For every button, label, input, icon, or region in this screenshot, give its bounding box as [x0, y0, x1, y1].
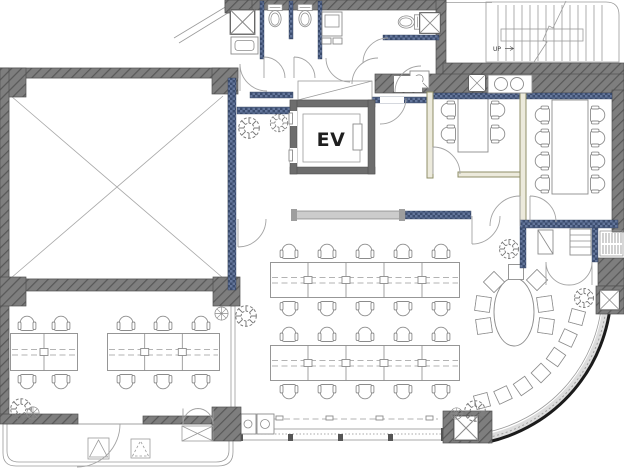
shaft-icon [600, 290, 620, 310]
void-atrium [9, 78, 228, 279]
desk-row [271, 346, 460, 381]
tree-icon [27, 407, 39, 419]
toilet [268, 4, 282, 27]
tree-icon [451, 408, 462, 419]
shaft-icon [469, 75, 486, 92]
sliding-partition [293, 211, 405, 219]
desk-row [271, 263, 460, 298]
lounge-chair [538, 318, 555, 335]
elevator-label: EV [317, 129, 346, 151]
lounge-chair [475, 296, 492, 313]
meeting-table [458, 98, 488, 152]
meeting-table [552, 100, 588, 194]
desk-group [11, 334, 78, 371]
shelf-unit [570, 229, 591, 255]
meeting-room-large [535, 100, 605, 194]
tree-icon [215, 307, 228, 320]
office-equipment [241, 414, 274, 434]
floor-plan: UP [0, 0, 624, 473]
desk-group [108, 334, 220, 371]
stool [568, 308, 585, 325]
oval-table [494, 278, 534, 346]
shaft-icon [420, 13, 441, 34]
toilet [398, 15, 421, 29]
basin [495, 78, 508, 91]
stairs-up-label: UP [493, 46, 501, 53]
lounge-chair [476, 318, 493, 335]
basin [511, 78, 524, 91]
floor-plan-canvas: UP [0, 0, 624, 473]
shaft-icon [230, 10, 254, 34]
toilet [298, 4, 312, 27]
lounge-chair [537, 296, 554, 313]
